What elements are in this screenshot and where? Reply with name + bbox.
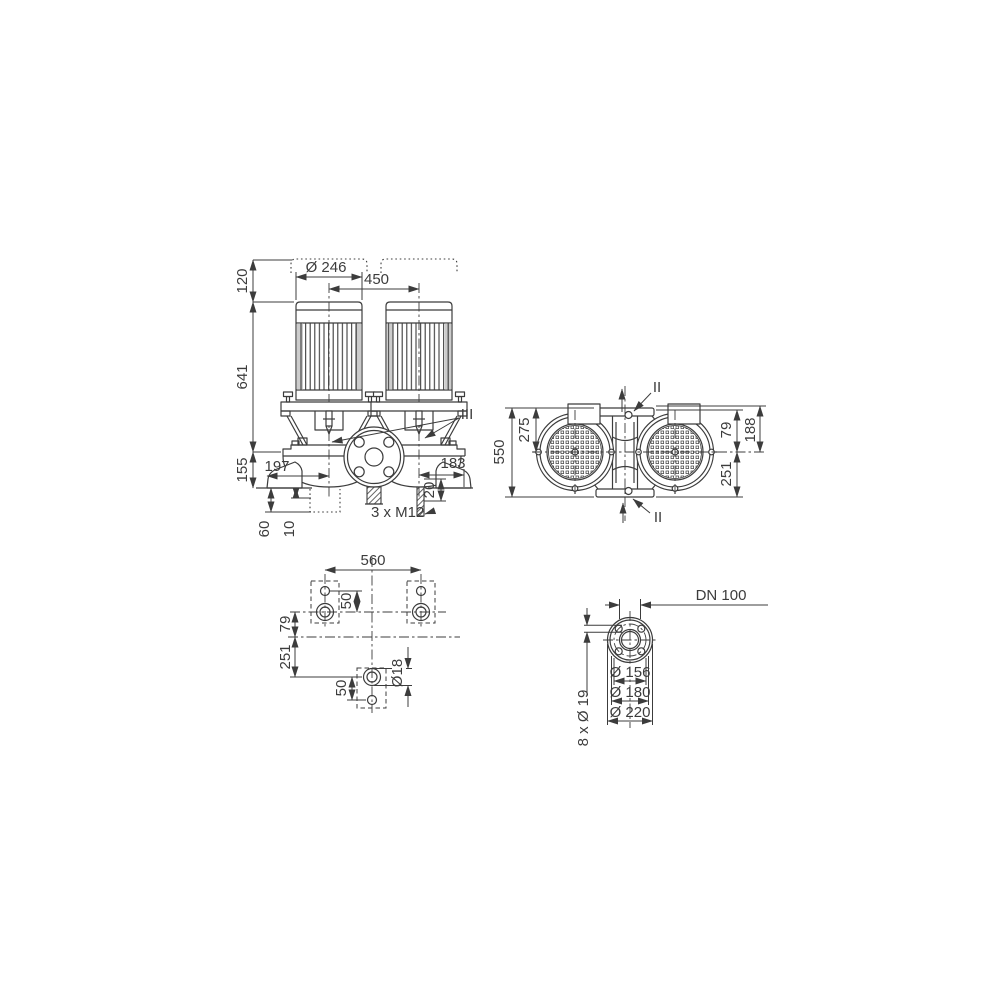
dim-height-to-axis: 641: [234, 364, 251, 389]
dim-79: 79: [277, 616, 294, 633]
front-view-dimensions: 120 641 155 Ø 246 450 197 183 20 3 x M12: [234, 259, 473, 537]
front-view: 120 641 155 Ø 246 450 197 183 20 3 x M12: [234, 259, 473, 537]
pump-dimensional-drawing: 120 641 155 Ø 246 450 197 183 20 3 x M12: [0, 0, 1000, 1000]
flange-detail-view: DN 100 Ø 156 Ø 180 Ø 220 8 x Ø 19: [575, 587, 768, 746]
dim-left-offset: 197: [264, 458, 289, 475]
dim-hole-pitch-lower: 50: [333, 680, 350, 697]
dim-motor-diameter: Ø 246: [306, 259, 347, 276]
dim-removal-clearance: 120: [234, 268, 251, 293]
dimensional-drawing-page: 120 641 155 Ø 246 450 197 183 20 3 x M12: [0, 0, 1000, 1000]
foundation-plan-view: 560 50 79 251 50: [277, 552, 460, 713]
dim-bolt-span: 560: [360, 552, 385, 569]
dim-outer-diameter: Ø 220: [610, 704, 651, 721]
terminal-box-right: [668, 404, 700, 424]
motor-removal-space-right: [381, 259, 457, 273]
label-vent-screws: III: [461, 406, 474, 423]
dim-188: 188: [742, 417, 759, 442]
label-studs: 3 x M12: [371, 504, 424, 521]
dim-axis-to-base: 155: [234, 457, 251, 482]
label-bolt-holes: 8 x Ø 19: [575, 690, 592, 747]
dim-grout-thickness: 10: [281, 521, 298, 538]
dim-hole-diameter: Ø18: [389, 659, 406, 687]
label-nominal-diameter: DN 100: [696, 587, 747, 604]
dim-251: 251: [718, 461, 735, 486]
dim-251: 251: [277, 644, 294, 669]
section-label-ii-top: II: [653, 379, 661, 396]
foundation-outline: [310, 489, 340, 512]
vent-plug-bottom: [625, 488, 632, 495]
central-flange: [344, 427, 404, 487]
dim-recess-diameter: Ø 156: [610, 664, 651, 681]
section-label-ii-bottom: II: [654, 509, 662, 526]
dim-hole-pitch-upper: 50: [338, 593, 355, 610]
drain-stub: [367, 487, 381, 504]
dim-79: 79: [718, 422, 735, 439]
dim-stud-projection: 20: [421, 482, 438, 499]
top-view: II II 550 275 79 188 251: [491, 379, 766, 526]
terminal-box-left: [568, 404, 600, 424]
vent-plug-top: [625, 412, 632, 419]
dim-foundation-depth: 60: [256, 521, 273, 538]
dim-overall-length: 550: [491, 439, 508, 464]
mounting-pad: [357, 668, 386, 708]
foundation-dimensions: 50 79 251 50 Ø18: [277, 591, 412, 707]
top-view-dimensions: 550 275 79 188 251: [491, 406, 766, 497]
flange-dimensions: DN 100 Ø 156 Ø 180 Ø 220 8 x Ø 19: [575, 587, 768, 746]
dim-axis-to-end: 275: [516, 417, 533, 442]
dim-pump-spacing: 450: [364, 271, 389, 288]
dim-right-offset: 183: [440, 455, 465, 472]
dim-bolt-circle: Ø 180: [610, 684, 651, 701]
